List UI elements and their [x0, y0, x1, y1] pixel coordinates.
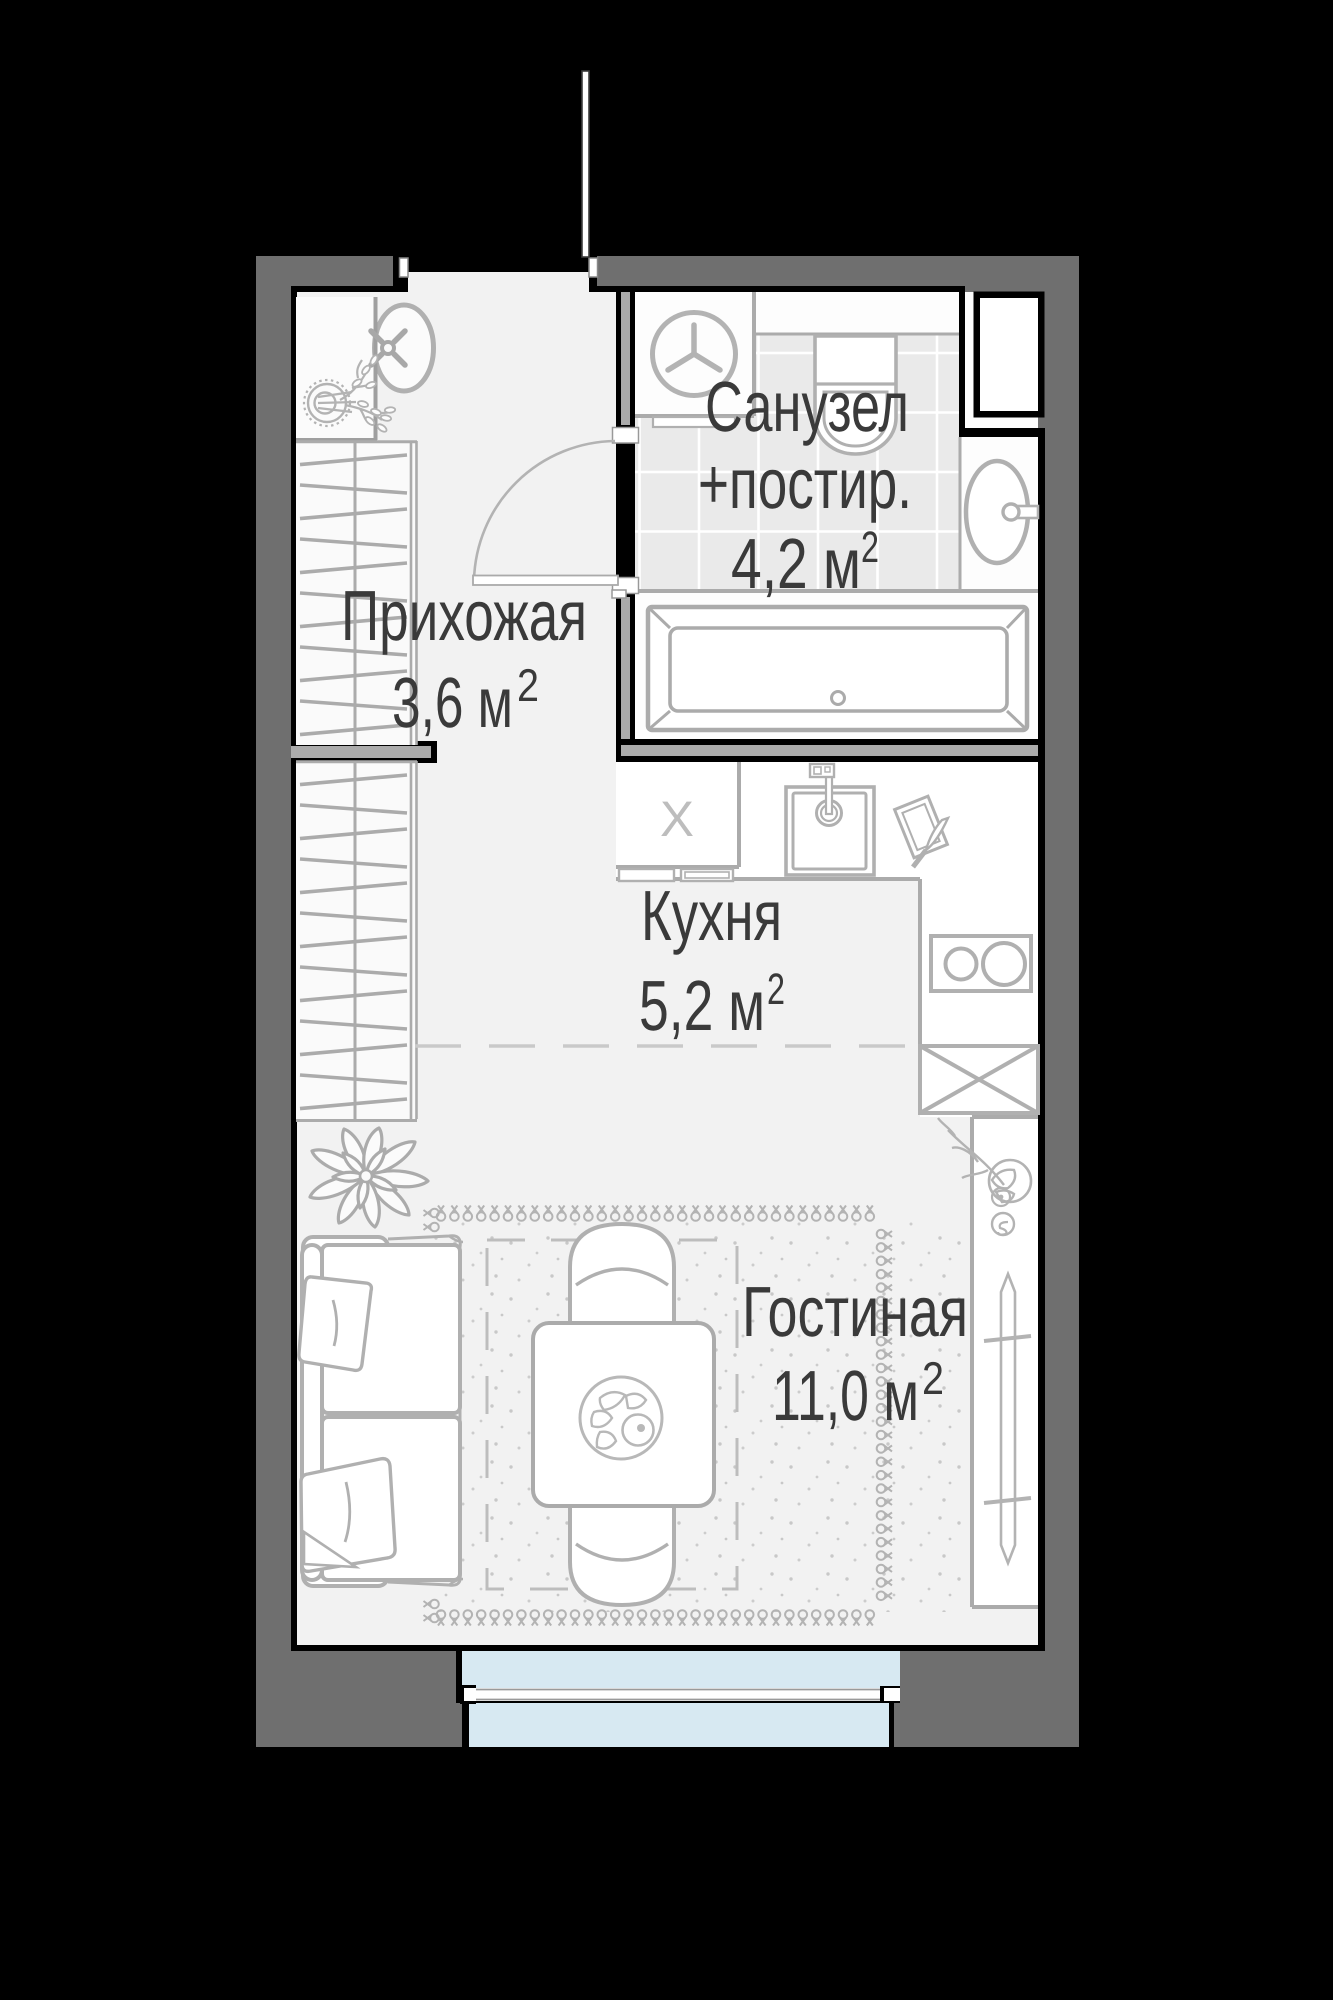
- svg-text:2: 2: [861, 523, 879, 572]
- svg-text:4,2 м: 4,2 м: [731, 525, 861, 604]
- svg-text:+постир.: +постир.: [698, 445, 912, 524]
- svg-text:2: 2: [922, 1352, 944, 1404]
- svg-text:X: X: [660, 791, 694, 847]
- svg-text:Кухня: Кухня: [641, 877, 782, 956]
- svg-text:11,0 м: 11,0 м: [772, 1357, 919, 1436]
- svg-text:5,2 м: 5,2 м: [639, 967, 765, 1046]
- svg-text:3,6 м: 3,6 м: [392, 664, 513, 743]
- svg-text:2: 2: [767, 965, 785, 1014]
- svg-text:Гостиная: Гостиная: [742, 1273, 968, 1352]
- svg-text:2: 2: [517, 659, 539, 711]
- svg-text:Санузел: Санузел: [705, 368, 909, 447]
- svg-text:Прихожая: Прихожая: [341, 577, 587, 656]
